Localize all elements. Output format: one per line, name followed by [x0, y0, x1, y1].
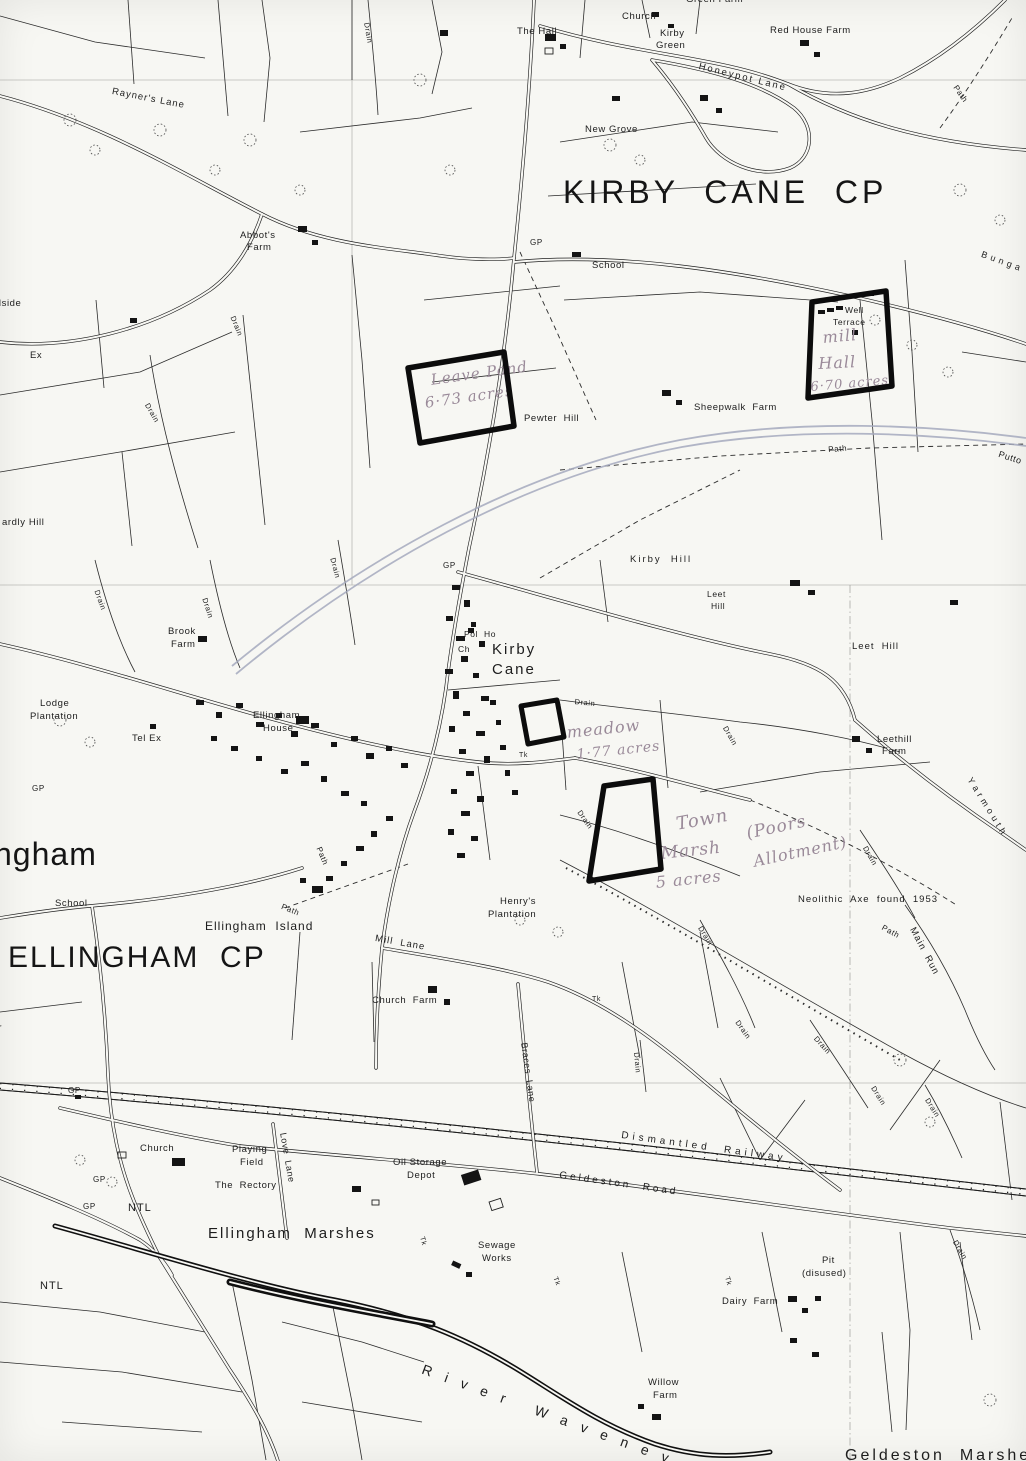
label-ntl: NTL [128, 1203, 152, 1215]
label-drain: Drain [201, 597, 215, 619]
label-leet-hill-east: Leet Hill [852, 642, 899, 652]
label-river-waveney: R i v e r W a v e n e y [420, 1362, 676, 1461]
label-honeypot-lane: Honeypot Lane [698, 62, 788, 94]
pencil-line-1 [232, 426, 1026, 666]
label-pewter-hill: Pewter Hill [524, 414, 579, 424]
label-kirby-hill: Kirby Hill [630, 555, 692, 565]
label-meadow-note: meadow [566, 717, 641, 741]
label-leethill-farm: Leethill [877, 735, 912, 745]
label-red-house-farm: Red House Farm [770, 26, 851, 36]
label-tel-ex: Tel Ex [132, 734, 161, 744]
label-ellingham-cp: ELLINGHAM CP [8, 942, 266, 974]
label-kirby-cane-cp: KIRBY CANE CP [563, 176, 887, 210]
label-ch: Ch [458, 645, 470, 654]
label-school-top: School [592, 261, 625, 271]
label-ntl: NTL [40, 1281, 64, 1293]
label-geldeston-marshes-partial: Geldeston Marshes [845, 1448, 1026, 1461]
label-town-marsh-note: Marsh [660, 840, 722, 864]
label-drain: Drain [721, 725, 738, 747]
label-love-lane: Love Lane [278, 1132, 296, 1183]
label-geldeston-road: Geldeston Road [559, 1171, 679, 1198]
label-neolithic-axe: Neolithic Axe found 1953 [798, 895, 938, 905]
label-lodge-plantation: Plantation [30, 712, 78, 722]
label-drain: Drain [574, 698, 596, 708]
label-rayners-lane: Rayner's Lane [111, 87, 186, 111]
label-poors-allotment-note: (Poors [745, 813, 808, 843]
label-gp: GP [83, 1203, 96, 1211]
label-gp: GP [93, 1176, 106, 1184]
label-tk: Tk [592, 996, 601, 1003]
label-abbots-farm: Abbot's [240, 231, 276, 241]
footpaths [285, 18, 1026, 908]
label-kirby-cane-village: Cane [492, 662, 536, 678]
label-sewage-works: Works [482, 1254, 512, 1264]
label-mill-hall-note: mill [822, 327, 858, 347]
label-road-partial: Road [0, 1006, 2, 1029]
label-dismantled-railway: Dismantled Railway [621, 1131, 787, 1165]
label-willow-farm: Willow [648, 1378, 679, 1388]
label-gp: GP [530, 239, 543, 247]
label-leave-pond-note: Leave Pond [430, 359, 529, 388]
label-new-grove: New Grove [585, 125, 638, 135]
label-willow-farm: Farm [653, 1391, 678, 1401]
label-church-bottom: Church [140, 1144, 174, 1154]
label-gp: GP [32, 785, 45, 793]
label-drain: Drain [861, 845, 878, 867]
label-dairy-farm: Dairy Farm [722, 1297, 778, 1307]
label-path: Path [280, 903, 301, 918]
label-well-terrace: Well [845, 306, 864, 315]
label-the-rectory: The Rectory [215, 1181, 277, 1191]
label-henrys-plantation: Henry's [500, 897, 536, 907]
label-mill-hall-note: Hall [818, 354, 857, 373]
label-drain: Drain [696, 925, 714, 947]
label-puttock-partial: Putto [997, 450, 1023, 466]
label-drain: Drain [93, 589, 108, 611]
label-pol-ho: Pol Ho [464, 630, 496, 639]
label-brook-farm: Brook [168, 627, 196, 637]
label-henrys-plantation: Plantation [488, 910, 536, 920]
label-path: Path [951, 84, 969, 104]
label-oil-storage-depot: Depot [407, 1171, 435, 1181]
label-ellingham-house: Ellingham [253, 711, 300, 721]
label-mill-hall-note: 6·70 acres [810, 374, 890, 394]
label-ellingham-house: House [263, 724, 293, 734]
label-town-marsh-note: Town [675, 807, 730, 835]
label-tk: Tk [418, 1236, 427, 1247]
label-ex-partial: Ex [30, 351, 42, 361]
plot-outline-town-marsh [589, 779, 661, 881]
label-drain: Drain [328, 557, 341, 579]
label-braces-lane: Braces Lane [519, 1042, 537, 1103]
label-leet-hill: Hill [711, 602, 725, 611]
label-leet-hill: Leet [707, 590, 726, 599]
label-school-left: School [55, 899, 88, 909]
label-main-run: Main Run [907, 926, 940, 977]
label-kirby-cane-village: Kirby [492, 642, 536, 658]
buildings [75, 12, 958, 1420]
label-kirby-green: Kirby [660, 29, 685, 39]
tree-symbols [54, 74, 1005, 1406]
label-drain: Drain [229, 315, 244, 337]
label-hillside-partial: Hillside [0, 299, 21, 309]
label-oil-storage-depot: Oil Storage [393, 1158, 447, 1168]
label-drain: Drain [143, 402, 160, 424]
label-playing-field: Field [240, 1158, 264, 1168]
label-abbots-farm: Farm [247, 243, 272, 253]
label-path: Path [880, 924, 901, 940]
label-playing-field: Playing [232, 1145, 267, 1155]
label-drain: Drain [734, 1019, 752, 1041]
plot-outline-meadow [521, 700, 564, 744]
label-tk: Tk [551, 1276, 561, 1287]
label-church-farm: Church Farm [372, 996, 437, 1006]
label-drain: Drain [576, 809, 594, 831]
label-ellingham-partial: ngham [0, 838, 97, 872]
label-kirby-green: Green [656, 41, 685, 51]
label-drain: Drain [923, 1097, 941, 1119]
label-leethill-farm: Farm [882, 747, 907, 757]
label-drain: Drain [632, 1052, 642, 1074]
label-tk: Tk [723, 1276, 732, 1287]
river-waveney-line [55, 1226, 770, 1456]
label-path: Path [828, 445, 847, 455]
label-mill-lane: Mill Lane [374, 934, 426, 953]
label-the-hall: The Hall [517, 27, 557, 37]
dismantled-railway-line [0, 1083, 1026, 1196]
label-tk: Tk [519, 752, 528, 759]
label-drain: Drain [362, 22, 373, 44]
label-sheepwalk-farm: Sheepwalk Farm [694, 403, 777, 413]
label-ellingham-island: Ellingham Island [205, 920, 313, 933]
label-church-top: Church [622, 12, 656, 22]
label-drain: Drain [951, 1239, 968, 1261]
label-path: Path [314, 846, 329, 867]
label-yarmouth-road: Y a r m o u t h [965, 776, 1008, 836]
label-ardly-hill-partial: ardly Hill [2, 518, 44, 528]
label-pit-disused: (disused) [802, 1269, 846, 1279]
label-green-farm: Green Farm [686, 0, 743, 5]
label-drain: Drain [812, 1035, 832, 1056]
label-sewage-works: Sewage [478, 1241, 516, 1251]
label-gp: GP [443, 562, 456, 570]
label-brook-farm: Farm [171, 640, 196, 650]
pencil-route-line [232, 426, 1026, 674]
label-gp: GP [68, 1087, 81, 1095]
label-lodge-plantation: Lodge [40, 699, 69, 709]
label-town-marsh-note: 5 acres [655, 868, 722, 892]
label-ellingham-marshes: Ellingham Marshes [208, 1226, 376, 1242]
label-meadow-note: 1·77 acres [576, 739, 661, 762]
label-drain: Drain [869, 1085, 887, 1107]
label-bungay-partial: B u n g a [980, 250, 1022, 273]
label-pit-disused: Pit [822, 1256, 835, 1266]
map-canvas: KIRBY CANE CPELLINGHAM CPnghamGeldeston … [0, 0, 1026, 1461]
